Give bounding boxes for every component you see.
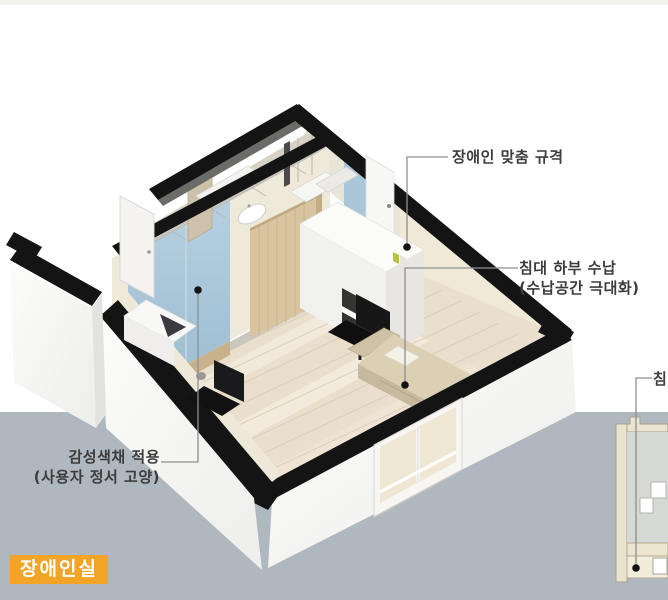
room-type-badge: 장애인실 (10, 555, 108, 584)
section-wall-art-2 (640, 498, 653, 513)
door-handle (387, 204, 391, 208)
dot-emotional-color (194, 286, 202, 294)
callout-custom-spec-text: 장애인 맞춤 규격 (452, 147, 564, 167)
dot-side-bed (632, 564, 640, 572)
background-top-strip (0, 0, 668, 5)
section-wall-art-1 (651, 482, 666, 498)
callout-custom-spec: 장애인 맞춤 규격 (452, 147, 564, 167)
sink-tap (248, 205, 251, 208)
section-bed-pillow (653, 558, 667, 574)
callout-emotional-color: 감성색채 적용 (사용자 정서 고양) (12, 447, 160, 487)
entry-door-handle (147, 250, 151, 254)
section-bed-mattress (627, 543, 668, 556)
dot-bed-storage (401, 381, 409, 389)
callout-bed-storage-line1: 침대 하부 수납 (519, 258, 640, 278)
section-left-wall (616, 424, 627, 582)
callout-bed-storage-line2: (수납공간 극대화) (519, 278, 640, 298)
callout-emotional-color-line2: (사용자 정서 고양) (12, 467, 160, 487)
isometric-room-diagram: 장애인 맞춤 규격 침대 하부 수납 (수납공간 극대화) 감성색채 적용 (사… (0, 0, 668, 600)
callout-bed-storage: 침대 하부 수납 (수납공간 극대화) (519, 258, 640, 298)
entry-door (120, 196, 154, 298)
dot-custom-spec (403, 243, 411, 251)
callout-side-section-bed-text: 침대 (653, 369, 668, 389)
side-section-diagram (616, 417, 668, 582)
callout-emotional-color-line1: 감성색채 적용 (12, 447, 160, 467)
room-type-badge-label: 장애인실 (20, 558, 98, 580)
callout-side-section-bed: 침대 (653, 369, 668, 389)
room-illustration (0, 0, 668, 600)
